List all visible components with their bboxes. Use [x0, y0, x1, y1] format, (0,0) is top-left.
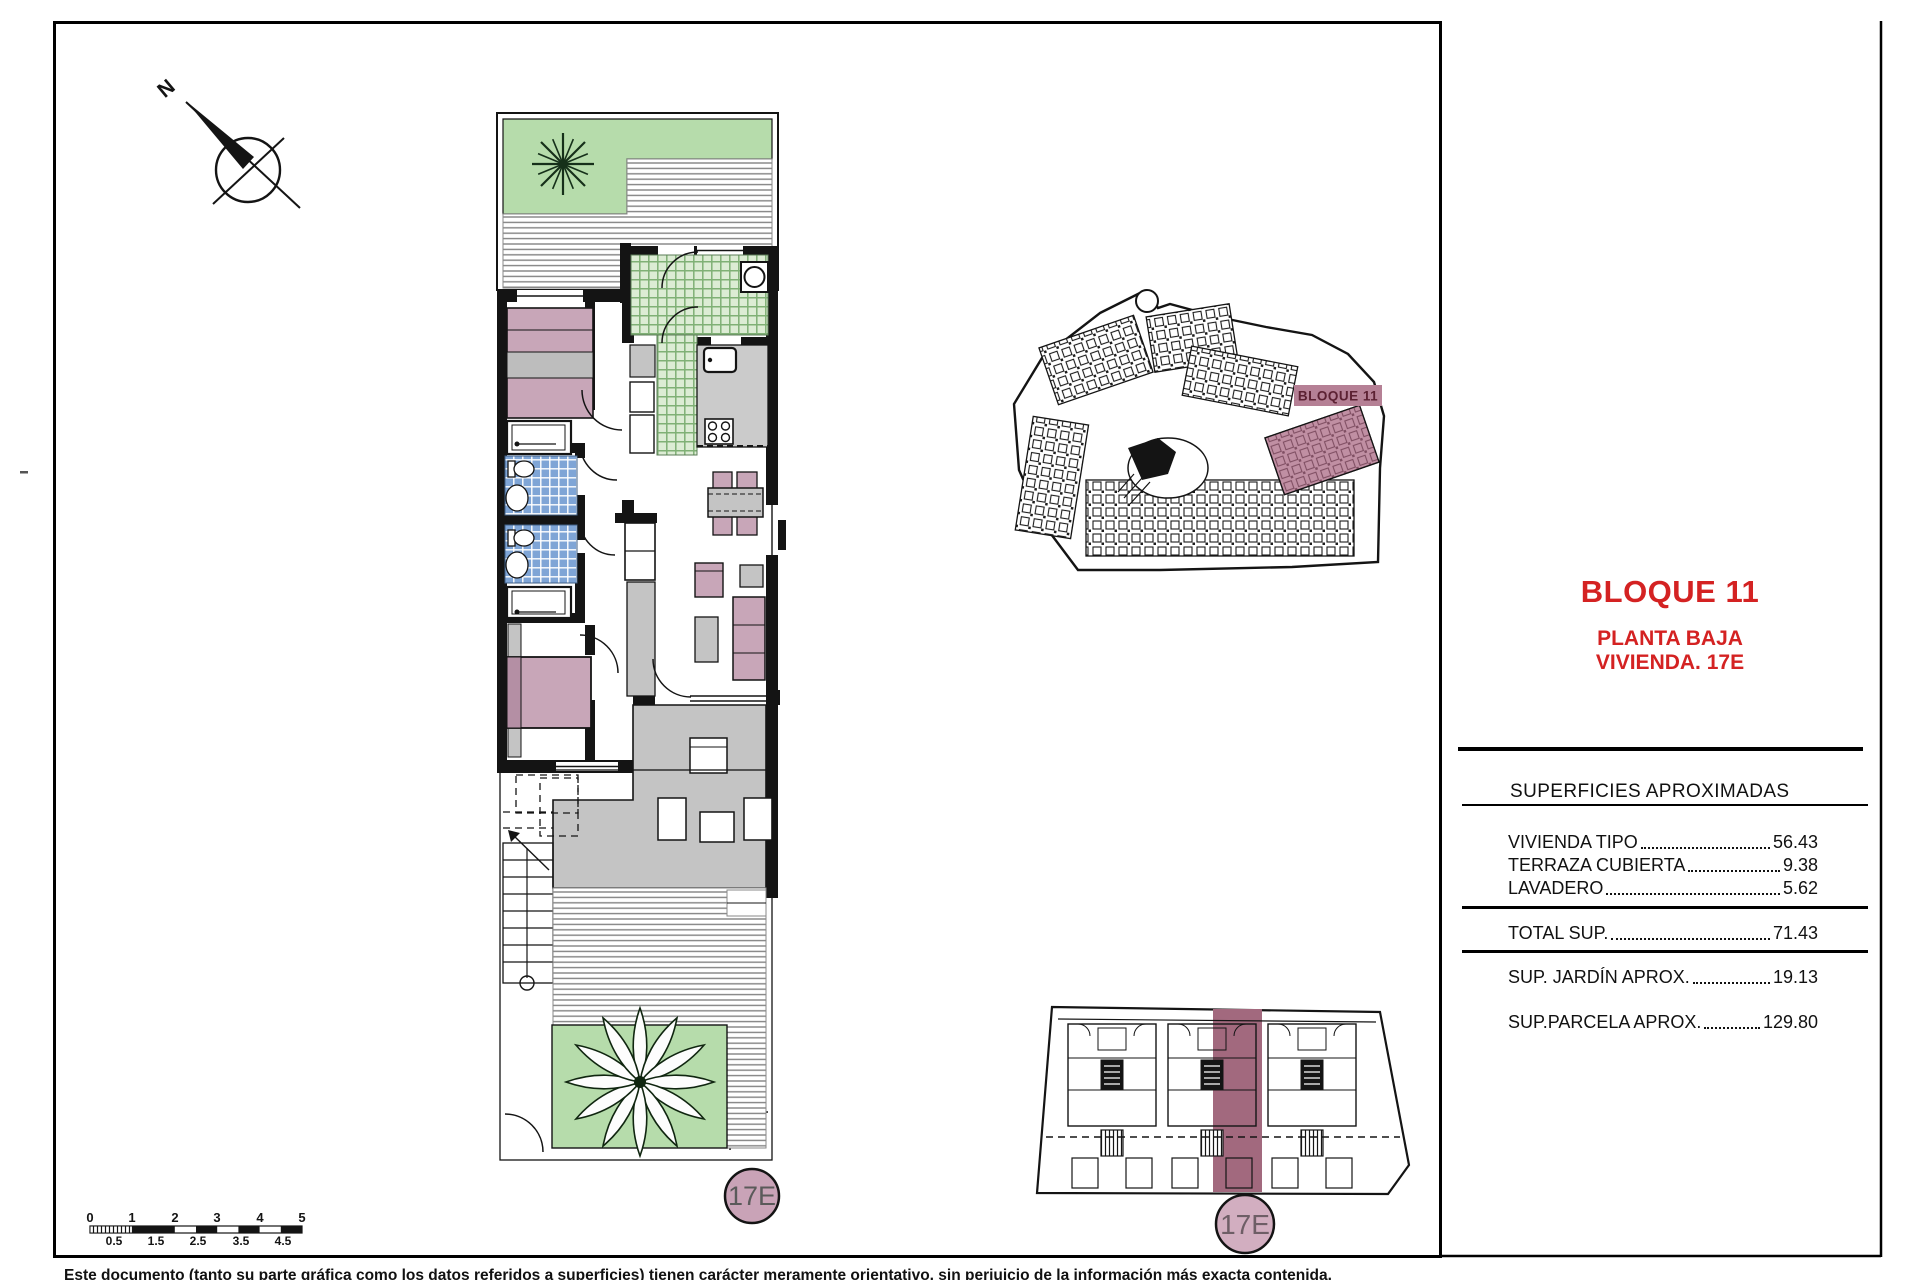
- bloque-11-label-box: BLOQUE 11: [1294, 385, 1382, 406]
- row-label: SUP.PARCELA APROX.: [1508, 1012, 1701, 1033]
- unit-badge-label: 17E: [1220, 1209, 1270, 1240]
- wardrobe: [627, 582, 655, 696]
- sink-2: [506, 552, 528, 578]
- compass-north-icon: N: [153, 75, 300, 208]
- unit-17e-band: [1213, 1009, 1262, 1192]
- surfaces-row-vivienda: VIVIENDA TIPO 56.43: [1508, 832, 1818, 853]
- sink-1: [506, 485, 528, 511]
- dotted-leader: [1704, 1027, 1760, 1029]
- row-value: 9.38: [1783, 855, 1818, 876]
- svg-text:4.5: 4.5: [275, 1234, 292, 1248]
- svg-text:0: 0: [86, 1210, 93, 1225]
- row-label: TOTAL SUP.: [1508, 923, 1608, 944]
- washing-machine-icon: [741, 262, 768, 292]
- bathtub-1: [507, 421, 571, 454]
- floor-plan: [497, 113, 786, 1160]
- svg-text:4: 4: [256, 1210, 264, 1225]
- unit-badge-label: 17E: [728, 1181, 776, 1211]
- kitchen-sink-icon: [704, 348, 736, 372]
- coffee-table: [695, 617, 718, 662]
- bed-double-2: [507, 657, 591, 728]
- svg-text:5: 5: [298, 1210, 305, 1225]
- surfaces-header-underline: [1462, 804, 1868, 806]
- surfaces-divider-1: [1462, 906, 1868, 909]
- kitchen-floor: [657, 335, 697, 455]
- svg-text:1: 1: [128, 1210, 135, 1225]
- panel-divider-top: [1458, 747, 1863, 751]
- row-value: 129.80: [1763, 1012, 1818, 1033]
- row-value: 19.13: [1773, 967, 1818, 988]
- row-value: 5.62: [1783, 878, 1818, 899]
- svg-text:2: 2: [171, 1210, 178, 1225]
- covered-terrace: [553, 705, 766, 888]
- row-value: 56.43: [1773, 832, 1818, 853]
- block-title: BLOQUE 11: [1460, 574, 1880, 610]
- stove-icon: [705, 419, 733, 444]
- side-table: [740, 565, 763, 587]
- surfaces-row-jardin: SUP. JARDÍN APROX. 19.13: [1508, 967, 1818, 988]
- svg-text:2.5: 2.5: [190, 1234, 207, 1248]
- surfaces-row-terraza: TERRAZA CUBIERTA 9.38: [1508, 855, 1818, 876]
- svg-text:1.5: 1.5: [148, 1234, 165, 1248]
- svg-text:3.5: 3.5: [233, 1234, 250, 1248]
- svg-text:0.5: 0.5: [106, 1234, 123, 1248]
- bloque-11-label: BLOQUE 11: [1298, 389, 1378, 404]
- bathtub-2: [507, 587, 571, 618]
- surfaces-row-lavadero: LAVADERO 5.62: [1508, 878, 1818, 899]
- dining-set: [708, 472, 763, 535]
- disclaimer-text: Este documento (tanto su parte gráfica c…: [64, 1267, 1332, 1280]
- compass-north-label: N: [153, 75, 179, 102]
- armchair: [695, 563, 723, 597]
- surfaces-header: SUPERFICIES APROXIMADAS: [1510, 781, 1790, 803]
- unit-subtitle: VIVIENDA. 17E: [1460, 651, 1880, 675]
- dotted-leader: [1688, 870, 1780, 872]
- edge-tick: [20, 471, 28, 474]
- row-label: LAVADERO: [1508, 878, 1603, 899]
- row-label: TERRAZA CUBIERTA: [1508, 855, 1685, 876]
- key-plan: [1037, 1007, 1409, 1194]
- scale-bar: 0 1 2 3 4 5 0.5 1.5 2.5 3.5 4.5: [86, 1210, 305, 1248]
- site-plan: BLOQUE 11: [1014, 290, 1384, 570]
- sofa: [733, 597, 765, 680]
- surfaces-row-total: TOTAL SUP. 71.43: [1508, 923, 1818, 944]
- toilet-2: [508, 530, 534, 546]
- unit-badge-key-plan: 17E: [1216, 1195, 1274, 1253]
- floor-subtitle: PLANTA BAJA: [1460, 627, 1880, 651]
- plan-document-page: N: [0, 0, 1920, 1280]
- row-value: 71.43: [1773, 923, 1818, 944]
- toilet-1: [508, 461, 534, 477]
- row-label: VIVIENDA TIPO: [1508, 832, 1638, 853]
- dotted-leader: [1611, 938, 1770, 940]
- svg-text:3: 3: [213, 1210, 220, 1225]
- surfaces-divider-2: [1462, 950, 1868, 953]
- row-label: SUP. JARDÍN APROX.: [1508, 967, 1690, 988]
- staircase: [503, 830, 553, 990]
- bed-double-1: [507, 308, 593, 418]
- dotted-leader: [1606, 893, 1780, 895]
- unit-badge-floor-plan: 17E: [725, 1169, 779, 1223]
- dotted-leader: [1693, 982, 1770, 984]
- surfaces-row-parcela: SUP.PARCELA APROX. 129.80: [1508, 1012, 1818, 1033]
- dotted-leader: [1641, 847, 1770, 849]
